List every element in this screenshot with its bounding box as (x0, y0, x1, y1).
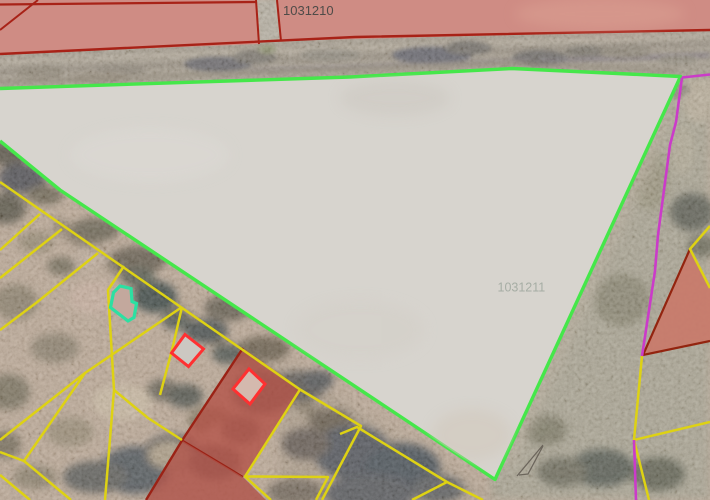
svg-text:1031211: 1031211 (498, 281, 546, 295)
svg-text:1031210: 1031210 (283, 3, 334, 18)
